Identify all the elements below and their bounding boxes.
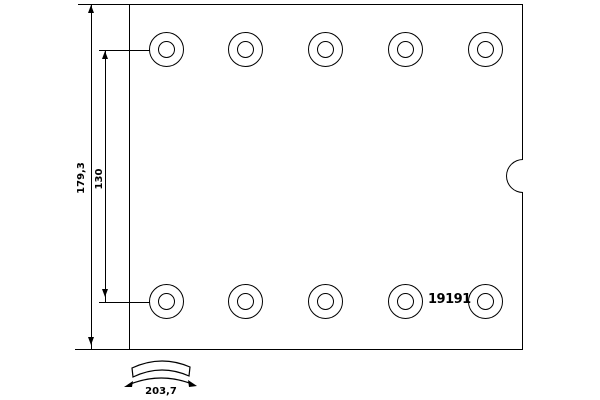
rivet-hole [468,32,503,67]
rivet-hole-inner [237,41,254,58]
rivet-hole-inner [158,41,175,58]
dim-arrow-up-icon [88,5,94,13]
rivet-hole-inner [158,293,175,310]
extension-line-top [78,4,129,5]
extension-line-bottom [75,349,129,350]
dim-label-hole-spacing: 130 [94,164,106,194]
rivet-hole [468,284,503,319]
extension-line-bottom-hole-row [99,302,151,303]
technical-drawing-canvas: 19191 179,3 130 203,7 [0,0,600,400]
rivet-hole-inner [477,293,494,310]
part-number: 19191 [428,293,468,307]
rivet-hole-inner [317,293,334,310]
curvature-arc-icon [124,356,200,390]
rivet-hole-inner [397,41,414,58]
dim-line-total-height [91,4,92,350]
rivet-hole [308,32,343,67]
dim-arrow-down-icon [102,289,108,297]
rivet-hole-inner [397,293,414,310]
rivet-hole-inner [237,293,254,310]
rivet-hole [388,284,423,319]
rivet-hole-inner [477,41,494,58]
rivet-hole [149,284,184,319]
dim-arrow-down-icon [88,337,94,345]
rivet-hole-inner [317,41,334,58]
extension-line-top-hole-row [99,50,151,51]
rivet-hole [228,284,263,319]
rivet-hole [308,284,343,319]
rivet-hole [228,32,263,67]
dim-label-total-height: 179,3 [76,158,88,198]
rivet-hole [388,32,423,67]
rivet-hole [149,32,184,67]
dim-arrow-up-icon [102,51,108,59]
